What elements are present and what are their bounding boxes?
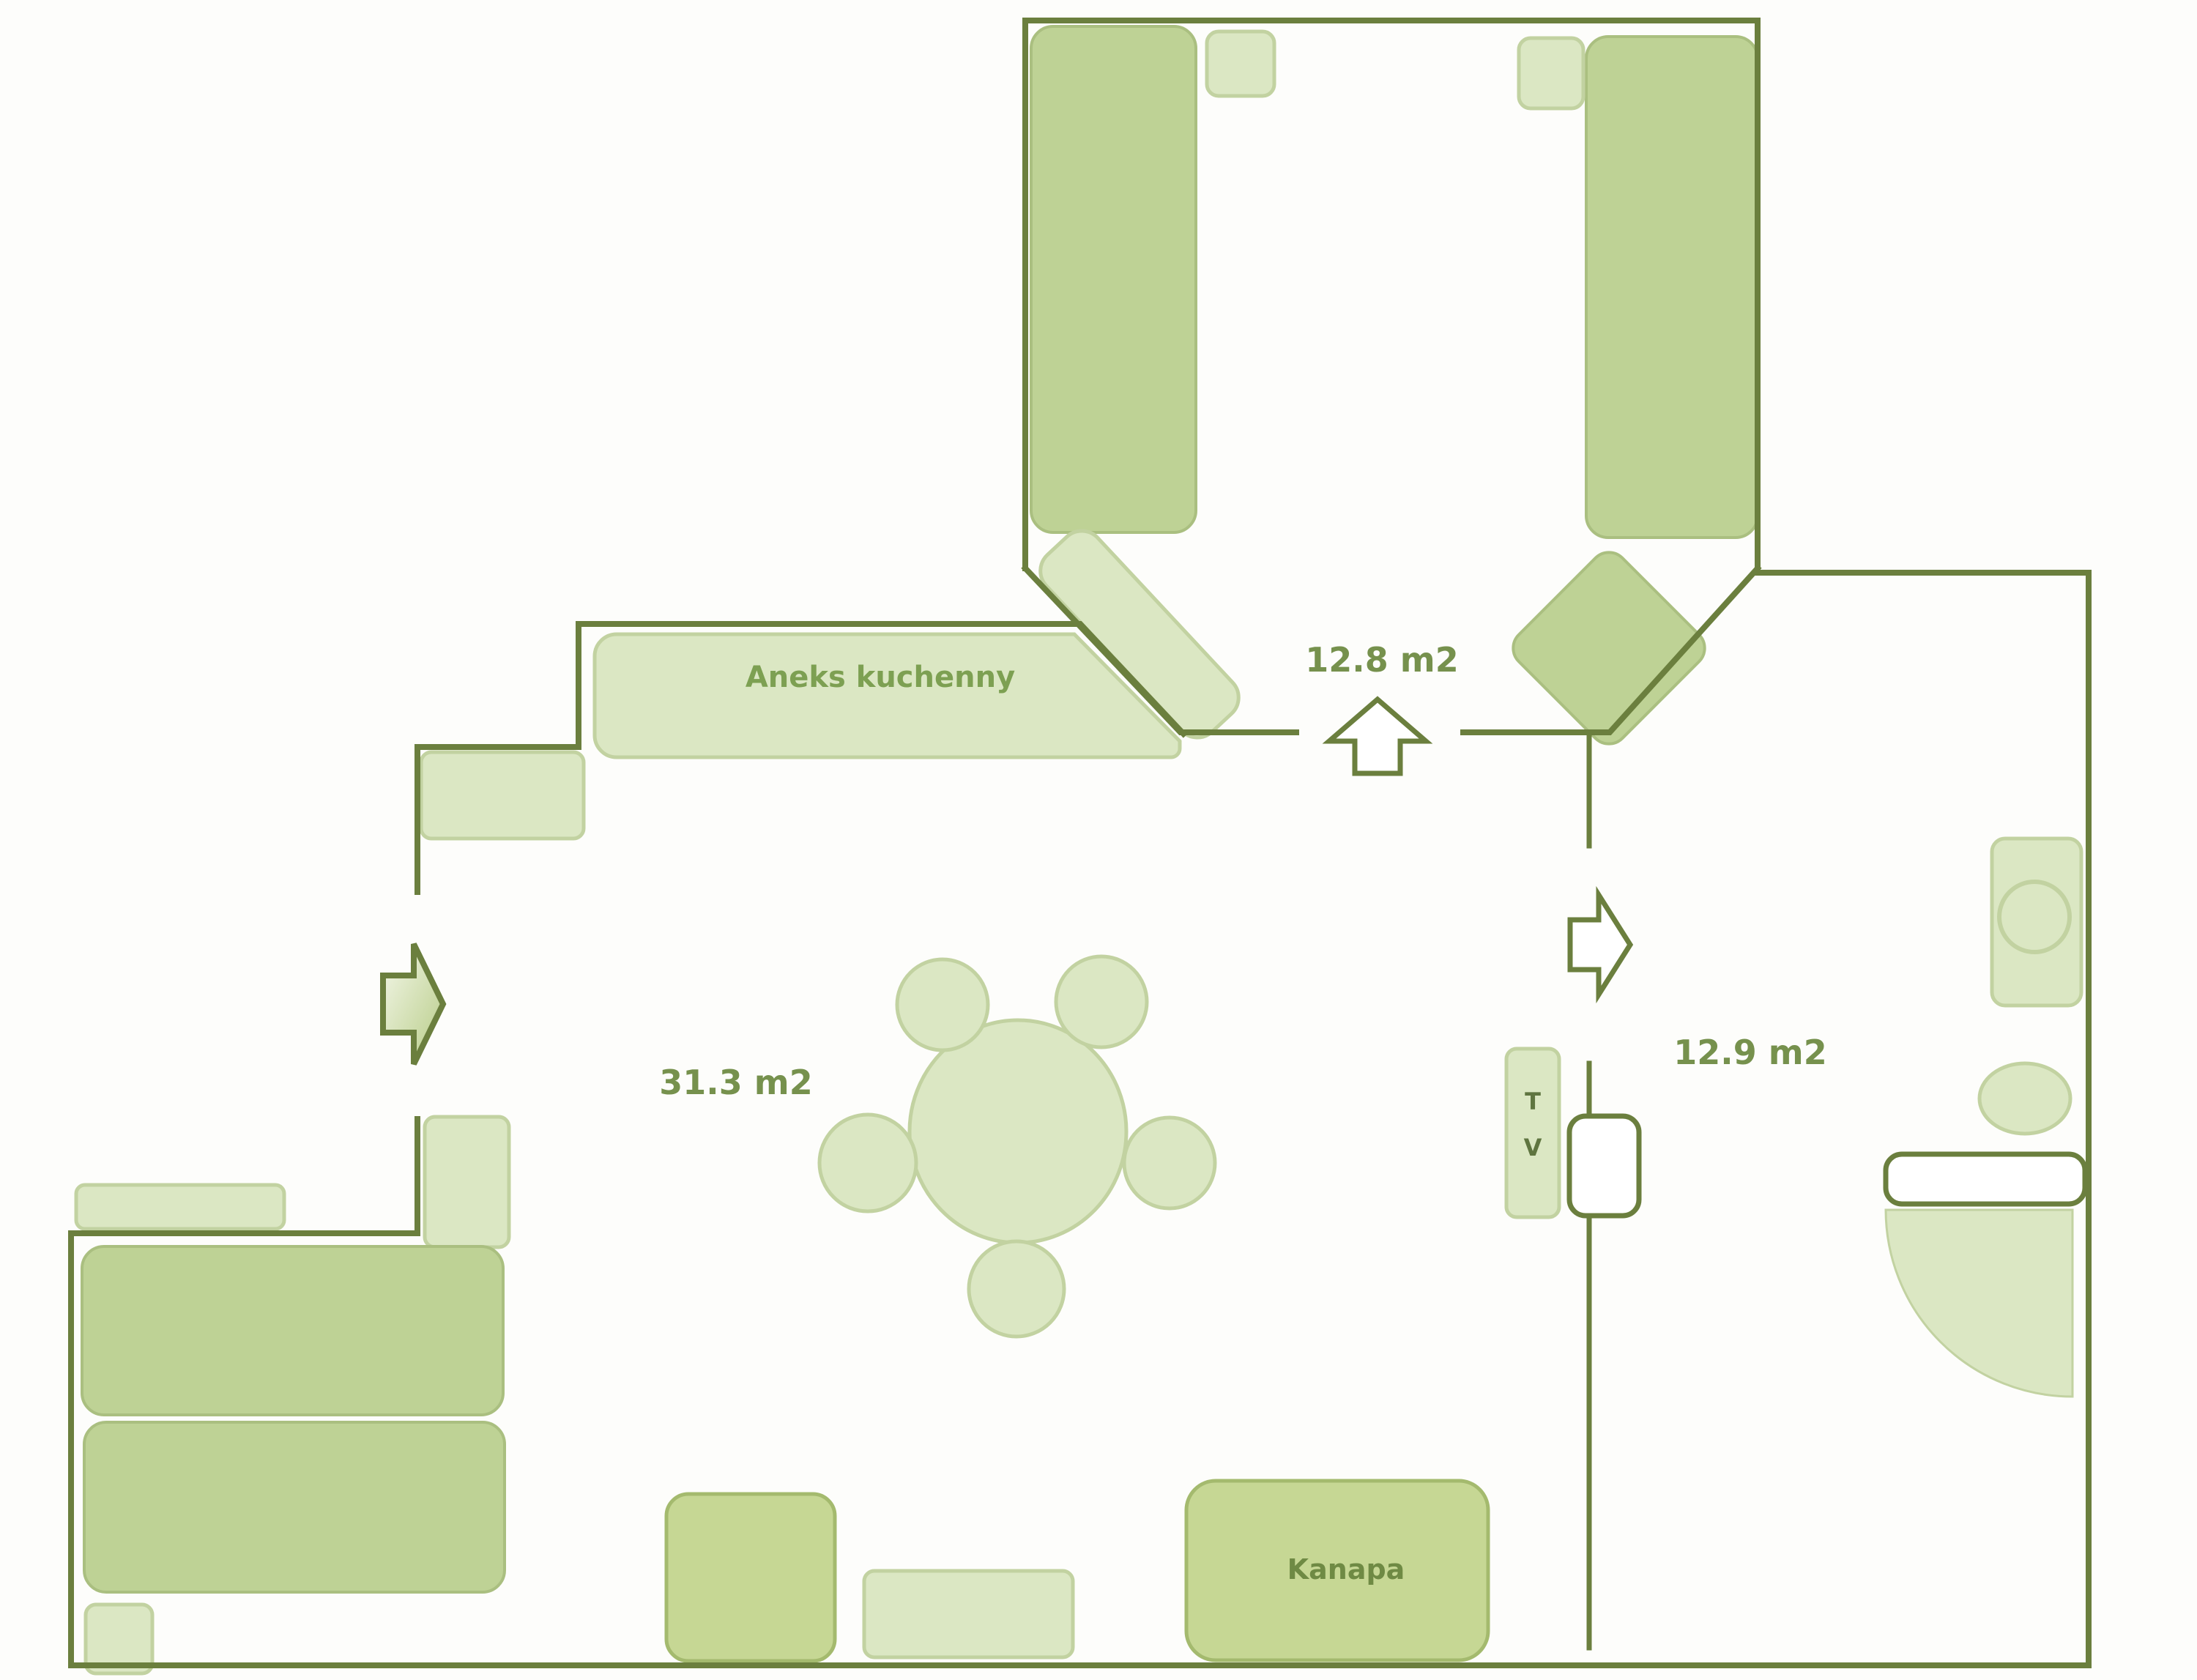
coffee-table bbox=[864, 1571, 1073, 1657]
floor-plan: 12.8 m2 31.3 m2 12.9 m2 Aneks kuchenny K… bbox=[0, 0, 2197, 1680]
door-leaf-horizontal bbox=[1886, 1154, 2085, 1204]
chair-top-right bbox=[1056, 956, 1147, 1047]
kitchen-counter bbox=[595, 634, 1180, 757]
arrow-right-room-door-icon bbox=[1570, 895, 1630, 995]
door-leaf-vertical bbox=[1569, 1116, 1639, 1216]
door-swing-arc bbox=[1886, 1210, 2073, 1397]
bedroom-area-label: 12.8 m2 bbox=[1305, 640, 1458, 680]
labels: 12.8 m2 31.3 m2 12.9 m2 Aneks kuchenny K… bbox=[659, 640, 1826, 1586]
chair-right bbox=[1124, 1118, 1215, 1208]
floor-plan-page: 12.8 m2 31.3 m2 12.9 m2 Aneks kuchenny K… bbox=[0, 0, 2197, 1680]
tv bbox=[1506, 1049, 1559, 1217]
wardrobe-b bbox=[84, 1422, 505, 1592]
tv-label-t: T bbox=[1525, 1088, 1541, 1115]
nightstand-right bbox=[1519, 38, 1583, 108]
chair-bottom bbox=[969, 1241, 1064, 1337]
sink bbox=[1979, 1063, 2070, 1134]
living-room-area-label: 31.3 m2 bbox=[659, 1063, 812, 1102]
cabinet-vertical bbox=[425, 1117, 509, 1247]
dining-table bbox=[910, 1020, 1126, 1243]
armchair bbox=[666, 1494, 835, 1661]
fridge bbox=[421, 752, 584, 839]
chair-left bbox=[819, 1115, 916, 1211]
shelf-top-left bbox=[76, 1185, 284, 1229]
nightstand-left bbox=[1207, 31, 1274, 96]
kitchen-label: Aneks kuchenny bbox=[746, 661, 1015, 694]
arrow-up-bedroom-door-icon bbox=[1329, 699, 1426, 773]
arrow-entrance-icon bbox=[383, 944, 443, 1064]
chair-top-left bbox=[897, 959, 988, 1050]
living-room-furniture bbox=[76, 634, 1488, 1673]
sofa-label: Kanapa bbox=[1287, 1553, 1405, 1586]
bedside-table-diamond bbox=[1506, 545, 1713, 752]
wardrobe-a bbox=[82, 1246, 503, 1415]
right-room-area-label: 12.9 m2 bbox=[1673, 1033, 1826, 1072]
bed-left bbox=[1031, 26, 1196, 532]
tv-label-v: V bbox=[1524, 1134, 1542, 1161]
bed-right bbox=[1586, 37, 1758, 538]
